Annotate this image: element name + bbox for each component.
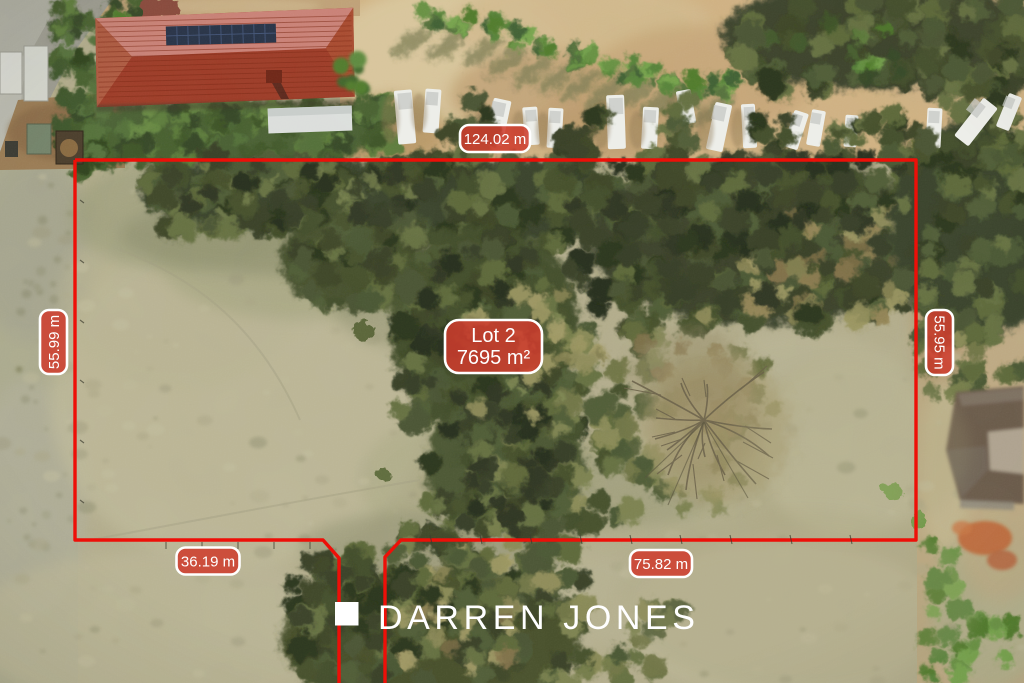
- svg-text:Lot 2: Lot 2: [471, 325, 515, 347]
- svg-text:DARREN JONES: DARREN JONES: [378, 599, 700, 637]
- svg-text:75.82 m: 75.82 m: [634, 556, 688, 573]
- svg-text:55.99 m: 55.99 m: [46, 315, 63, 369]
- svg-text:36.19 m: 36.19 m: [181, 553, 235, 570]
- svg-text:124.02 m: 124.02 m: [464, 131, 527, 148]
- svg-text:55.95 m: 55.95 m: [930, 315, 947, 369]
- svg-text:7695 m²: 7695 m²: [457, 347, 531, 369]
